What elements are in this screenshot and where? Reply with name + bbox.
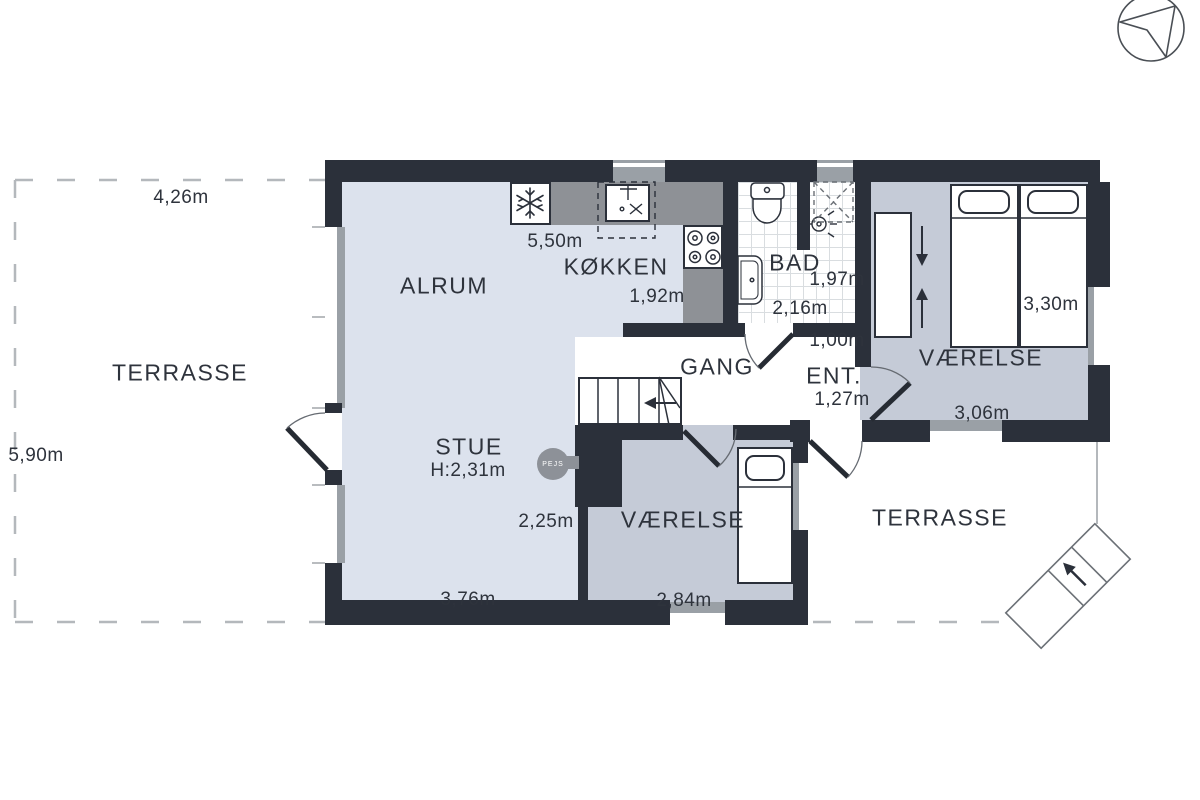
measurement: 1,27m [814,389,869,411]
stairs-treads [598,377,680,425]
measurement: 2,25m [518,511,573,533]
room-label-vaerelse-top: VÆRELSE [919,345,1043,372]
washbasin-icon [738,256,762,304]
room-label-terrasse-left: TERRASSE [112,360,248,387]
room-label-alrum: ALRUM [400,273,488,300]
measurement: 1,92m [629,286,684,308]
toilet-icon [751,183,784,223]
measurement: 2,84m [656,590,711,612]
dimension-ticks [312,227,325,563]
room-label-ent: ENT. [806,363,862,390]
stove-burners-icon [688,231,720,264]
measurement: 2,16m [772,298,827,320]
door-entrance [810,441,862,477]
measurement: 1,00m [809,330,864,352]
kitchen-sink-icon [598,182,655,238]
measurement: 4,26m [153,187,208,209]
fixtures-layer [0,0,1200,800]
measurement: 3,76m [440,589,495,611]
room-label-stue: STUE [435,434,502,461]
stairs-direction-arrow-icon [644,397,676,409]
measurement: 5,50m [527,231,582,253]
measurement: 3,30m [1023,294,1078,316]
room-label-kokken: KØKKEN [564,254,669,281]
measurement: 1,97m [809,269,864,291]
snowflake-icon [517,188,543,218]
room-label-terrasse-right: TERRASSE [872,505,1008,532]
room-label-vaerelse-bottom: VÆRELSE [621,507,745,534]
ceiling-height-label: H:2,31m [430,460,505,482]
door-vaerelse-top [871,367,910,420]
room-label-gang: GANG [680,354,754,381]
measurement: 3,06m [954,403,1009,425]
door-terrace [287,413,327,470]
floor-plan: PEJS [0,0,1200,800]
wardrobe-arrows-icon [916,226,928,328]
door-vaerelse-bottom [684,429,736,466]
measurement: 5,90m [8,445,63,467]
shower-head-icon [798,182,853,237]
